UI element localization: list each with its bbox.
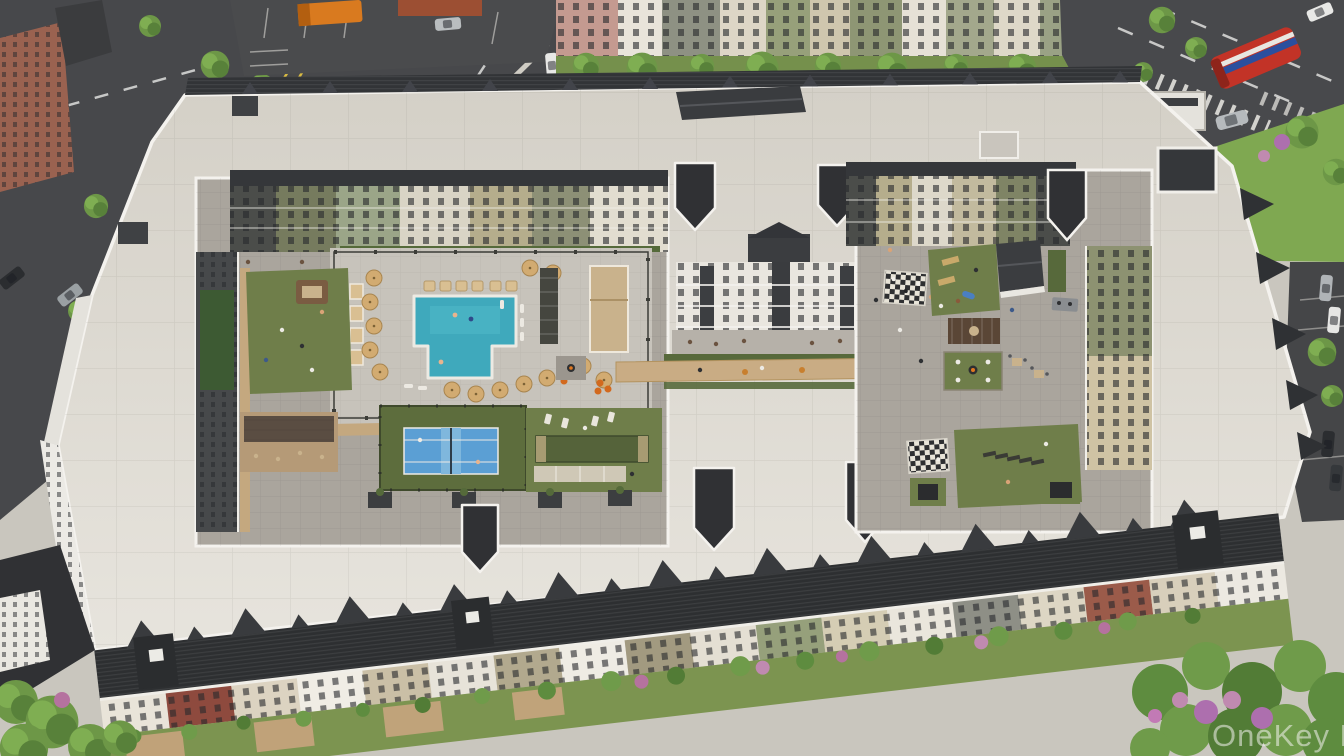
swimmer [453, 313, 458, 318]
inner-facades-west [196, 252, 238, 532]
grill-counter [1052, 297, 1079, 312]
pool-pavilion [590, 266, 628, 352]
rooftop-unit [980, 132, 1018, 158]
aerial-rendering: OneKey MLS [0, 0, 1344, 756]
games-lawn [526, 408, 662, 492]
rooftop-unit [118, 222, 148, 244]
chess-board-north [883, 271, 927, 306]
bocce-court [536, 436, 648, 462]
breezeway [772, 262, 790, 336]
flowering-shrub [1274, 134, 1290, 150]
courtyard-west [196, 170, 668, 546]
terrace-pergola [244, 416, 334, 442]
red-roof-building [398, 0, 482, 16]
grill-lawn [246, 268, 352, 394]
rooftop-unit [232, 96, 258, 116]
player [418, 438, 422, 442]
courtyard-east [846, 162, 1152, 532]
dining-terrace [240, 412, 338, 472]
inner-facades-east [1086, 246, 1152, 470]
orange-truck [297, 0, 362, 26]
dog-park-shed [996, 240, 1045, 298]
inner-facades-north-east [846, 176, 1070, 246]
dining-pergola [948, 318, 1000, 344]
fire-planter [944, 352, 1002, 390]
rendering-canvas: OneKey MLS [0, 0, 1344, 756]
pedestrian [698, 368, 702, 372]
pickleball-court [380, 406, 526, 490]
inner-mansard [230, 170, 668, 186]
watermark-text: OneKey MLS [1212, 718, 1344, 753]
dog [956, 299, 960, 303]
dog-park [928, 244, 1000, 316]
patio-strip [672, 330, 886, 354]
rooftop-unit [1158, 148, 1216, 192]
fire-pit-lounge [556, 356, 586, 380]
inner-facades-north [230, 186, 668, 252]
chess-board-south [907, 439, 949, 474]
